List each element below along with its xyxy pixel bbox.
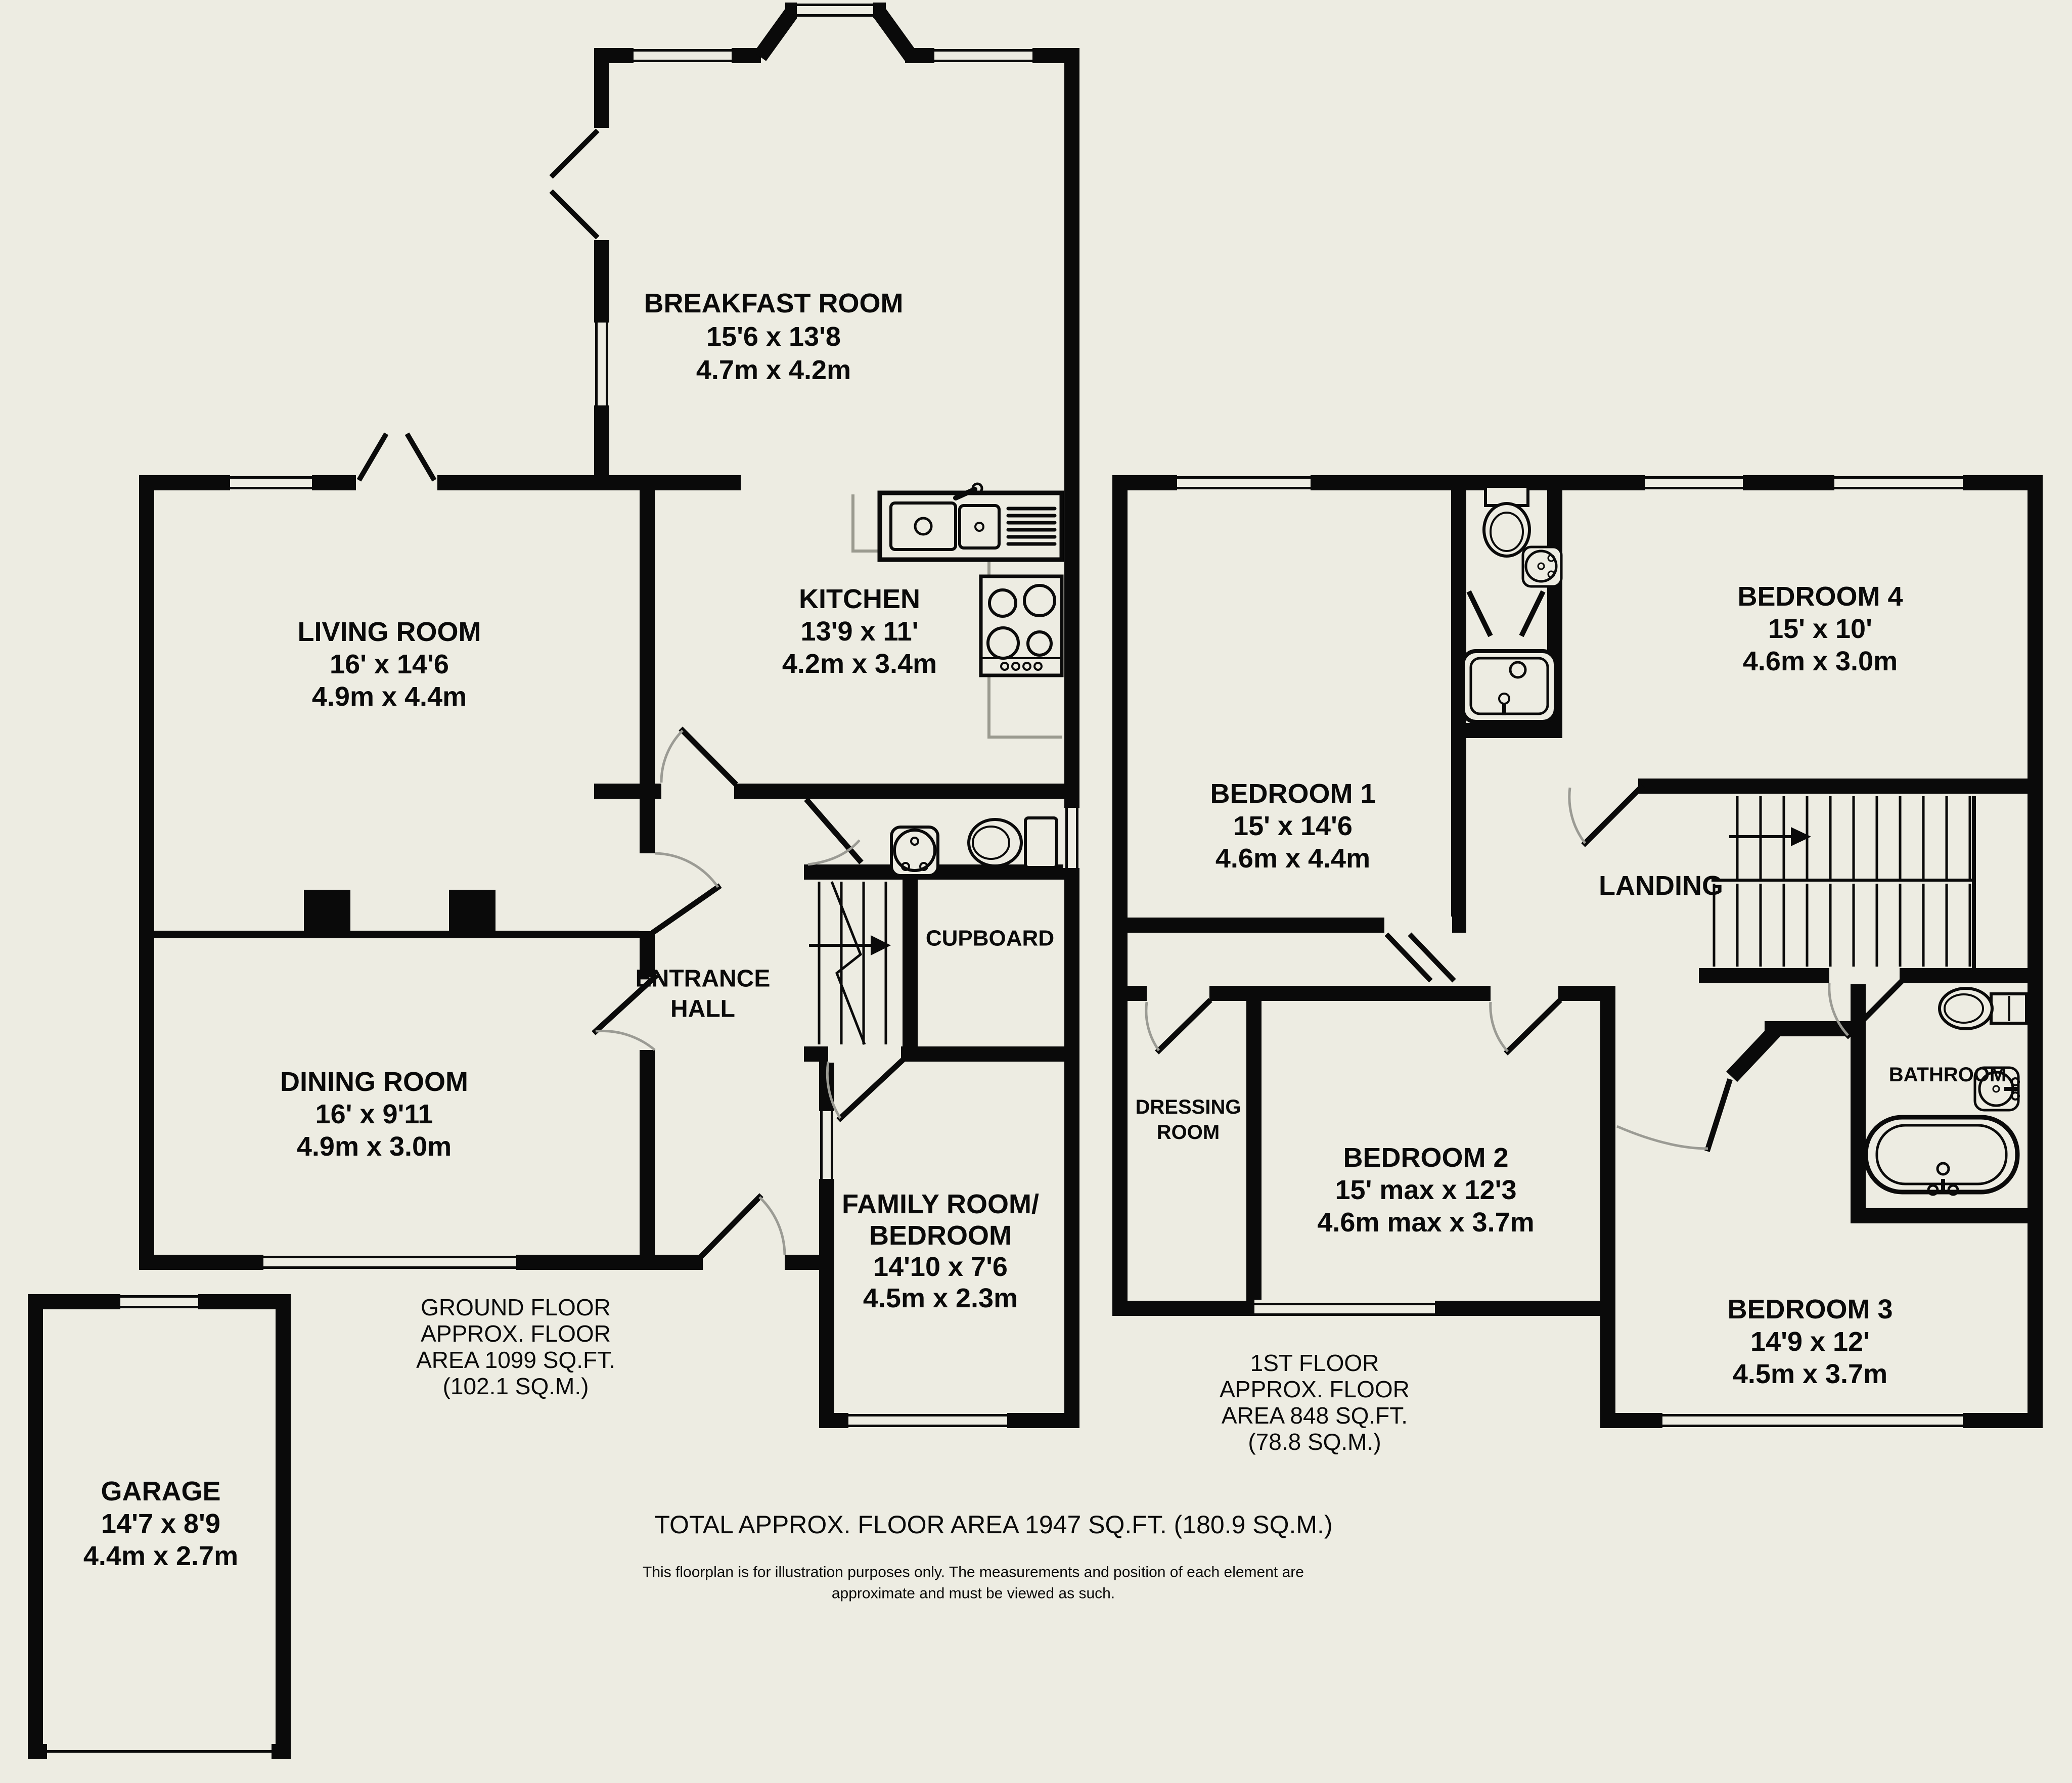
dressing-room-label-2: ROOM [1157, 1121, 1220, 1144]
bedroom3-imperial: 14'9 x 12' [1750, 1327, 1870, 1357]
breakfast-double-doors [551, 130, 598, 238]
ground-area-note-1: GROUND FLOOR [421, 1294, 611, 1320]
front-door [703, 1197, 785, 1255]
bedroom4-metric: 4.6m x 3.0m [1743, 646, 1898, 676]
floorplan-page: BREAKFAST ROOM 15'6 x 13'8 4.7m x 4.2m L… [0, 0, 2072, 1783]
dining-room-imperial: 16' x 9'11 [316, 1099, 433, 1129]
garage-label: GARAGE [101, 1476, 220, 1506]
entrance-hall-label-2: HALL [670, 996, 735, 1023]
fireplace-hearth [350, 890, 449, 931]
living-room-door [655, 853, 718, 931]
first-floor-labels: BEDROOM 1 15' x 14'6 4.6m x 4.4m BEDROOM… [1136, 581, 2007, 1455]
hob [981, 576, 1062, 675]
first-area-note-1: 1ST FLOOR [1250, 1350, 1379, 1376]
ground-area-note-2: APPROX. FLOOR [421, 1320, 611, 1347]
first-floor-plan: BEDROOM 1 15' x 14'6 4.6m x 4.4m BEDROOM… [1112, 474, 2043, 1455]
kitchen-sink [880, 484, 1062, 560]
bedroom1-metric: 4.6m x 4.4m [1215, 843, 1370, 874]
shower [1463, 651, 1556, 722]
wc-toilet [969, 818, 1057, 867]
stairs-up-arrow [871, 935, 891, 955]
first-floor-stairs [1711, 796, 1976, 968]
bedroom1-imperial: 15' x 14'6 [1233, 811, 1353, 841]
dining-room-metric: 4.9m x 3.0m [297, 1131, 452, 1162]
floorplan-drawing: BREAKFAST ROOM 15'6 x 13'8 4.7m x 4.2m L… [0, 0, 2072, 1783]
bedroom2-door [1491, 1002, 1558, 1051]
bedroom1-label: BEDROOM 1 [1210, 779, 1375, 809]
disclaimer-line-1: This floorplan is for illustration purpo… [643, 1564, 1304, 1581]
dressing-room-door [1146, 1002, 1208, 1050]
garage-metric: 4.4m x 2.7m [83, 1541, 238, 1571]
family-room-label-2: BEDROOM [869, 1220, 1012, 1251]
first-area-note-4: (78.8 SQ.M.) [1248, 1429, 1381, 1455]
breakfast-room-imperial: 15'6 x 13'8 [706, 322, 841, 352]
first-area-note-2: APPROX. FLOOR [1220, 1376, 1410, 1402]
ground-floor-plan: BREAKFAST ROOM 15'6 x 13'8 4.7m x 4.2m L… [139, 2, 1080, 1429]
wc-basin [891, 827, 938, 876]
ground-area-note-3: AREA 1099 SQ.FT. [416, 1347, 615, 1373]
ensuite-toilet [1484, 486, 1529, 556]
family-room-door [827, 1062, 901, 1118]
breakfast-room-label: BREAKFAST ROOM [644, 288, 904, 318]
wc-door [808, 801, 860, 864]
garage-door [47, 1750, 272, 1753]
breakfast-room-metric: 4.7m x 4.2m [696, 355, 851, 385]
family-room-imperial: 14'10 x 7'6 [873, 1252, 1008, 1282]
total-area-text: TOTAL APPROX. FLOOR AREA 1947 SQ.FT. (18… [654, 1511, 1332, 1539]
bedroom3-door [1617, 1082, 1729, 1149]
living-garden-double-doors [359, 434, 434, 480]
bathtub [1866, 1117, 2017, 1195]
bedroom3-label: BEDROOM 3 [1727, 1294, 1893, 1324]
landing-label: LANDING [1599, 871, 1723, 901]
dining-room-label: DINING ROOM [280, 1067, 468, 1097]
kitchen-metric: 4.2m x 3.4m [782, 649, 937, 679]
bedroom1-door [1386, 934, 1454, 981]
kitchen-door [661, 730, 734, 783]
bathroom-toilet [1940, 988, 2026, 1029]
bathroom-label: BATHROOM [1889, 1064, 2007, 1086]
bedroom4-imperial: 15' x 10' [1768, 614, 1872, 644]
entrance-hall-label-1: ENTRANCE [636, 966, 771, 992]
ensuite-double-doors [1469, 591, 1543, 636]
bedroom2-imperial: 15' max x 12'3 [1335, 1175, 1517, 1205]
bedroom4-door [1569, 788, 1641, 843]
bedroom2-label: BEDROOM 2 [1343, 1142, 1508, 1173]
bathroom-fixtures [1866, 988, 2026, 1195]
disclaimer-line-2: approximate and must be viewed as such. [832, 1585, 1115, 1602]
stairs-lower-flight [1714, 884, 1970, 967]
bedroom3-metric: 4.5m x 3.7m [1733, 1359, 1887, 1389]
ground-floor-stairs [809, 882, 891, 1044]
garage-labels: GARAGE 14'7 x 8'9 4.4m x 2.7m [83, 1476, 238, 1571]
living-room-imperial: 16' x 14'6 [330, 649, 449, 679]
kitchen-label: KITCHEN [799, 584, 920, 614]
footer: TOTAL APPROX. FLOOR AREA 1947 SQ.FT. (18… [643, 1511, 1333, 1602]
garage-imperial: 14'7 x 8'9 [101, 1508, 220, 1539]
dressing-room-label-1: DRESSING [1136, 1096, 1241, 1118]
family-room-label-1: FAMILY ROOM/ [842, 1189, 1039, 1219]
bedroom4-label: BEDROOM 4 [1737, 581, 1903, 612]
kitchen-imperial: 13'9 x 11' [801, 616, 919, 647]
garage-plan: GARAGE 14'7 x 8'9 4.4m x 2.7m [28, 1293, 291, 1760]
ensuite-basin [1523, 547, 1561, 586]
living-room-label: LIVING ROOM [298, 617, 481, 647]
living-room-metric: 4.9m x 4.4m [312, 681, 467, 712]
ground-area-note-4: (102.1 SQ.M.) [443, 1373, 589, 1399]
bedroom2-metric: 4.6m max x 3.7m [1317, 1207, 1534, 1238]
family-room-metric: 4.5m x 2.3m [863, 1283, 1018, 1313]
first-floor-walls [1112, 475, 2043, 1428]
first-area-note-3: AREA 848 SQ.FT. [1222, 1402, 1408, 1429]
cupboard-label: CUPBOARD [926, 926, 1054, 951]
